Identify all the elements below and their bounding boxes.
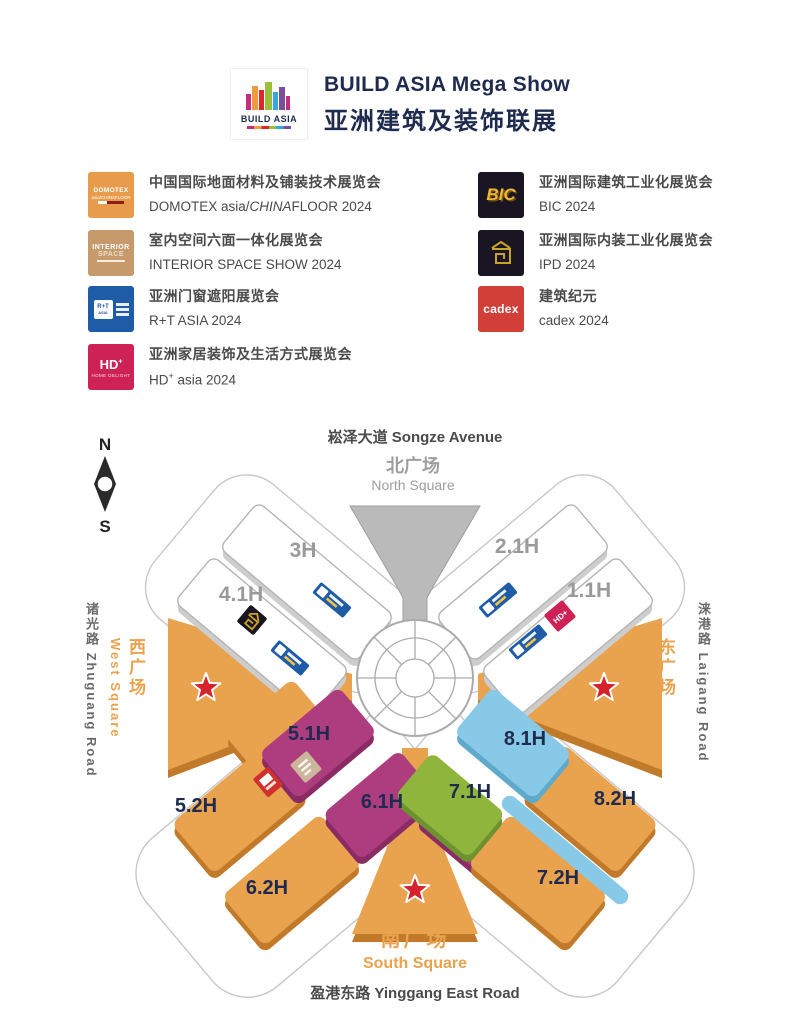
legend-item-ipd: 亚洲国际内装工业化展览会 IPD 2024 [478, 230, 713, 276]
legend-en: R+T ASIA 2024 [149, 313, 280, 328]
south-square-en: South Square [363, 955, 467, 972]
legend-cn: 亚洲国际建筑工业化展览会 [539, 172, 713, 192]
road-east-label: 涞港路 Laigang Road [694, 602, 713, 763]
legend-en: IPD 2024 [539, 257, 713, 272]
road-west-label: 诸光路 Zhuguang Road [82, 602, 101, 778]
west-square-label: 西广场 West Square [108, 638, 148, 739]
cadex-logo: cadex [478, 286, 524, 332]
page-title: BUILD ASIA Mega Show [324, 73, 570, 97]
legend-cn: 亚洲国际内装工业化展览会 [539, 230, 713, 250]
interior-logo-rule [97, 260, 125, 262]
compass-s: S [99, 517, 110, 536]
domotex-logo-bar [98, 201, 124, 204]
legend-en: cadex 2024 [539, 313, 609, 328]
poster-page: BUILD ASIA BUILD ASIA Mega Show 亚洲建筑及装饰联… [0, 0, 800, 1011]
legend-item-rt-asia: R+T ASIA 亚洲门窗遮阳展览会 R+T ASIA 2024 [88, 286, 280, 332]
north-square-en: North Square [371, 477, 454, 493]
title-block: BUILD ASIA Mega Show 亚洲建筑及装饰联展 [324, 73, 570, 136]
hall-label-5.1H: 5.1H [288, 723, 330, 745]
legend-item-bic: BIC 亚洲国际建筑工业化展览会 BIC 2024 [478, 172, 713, 218]
north-square-cn: 北广场 [386, 455, 440, 476]
compass-n: N [99, 435, 111, 454]
legend-item-hd-asia: HD+ HOME DELIGHT 亚洲家居装饰及生活方式展览会 HD+ asia… [88, 344, 352, 390]
hall-label-6.1H: 6.1H [361, 791, 403, 813]
ipd-spiral-icon [487, 239, 515, 267]
hall-label-8.1H: 8.1H [504, 728, 546, 750]
legend-cn: 亚洲家居装饰及生活方式展览会 [149, 344, 352, 364]
rt-logo-lines [116, 303, 129, 316]
ipd-logo [478, 230, 524, 276]
legend-cn: 亚洲门窗遮阳展览会 [149, 286, 280, 306]
east-square-label: 东广场 East Square [638, 638, 678, 735]
page-subtitle: 亚洲建筑及装饰联展 [324, 101, 570, 136]
road-south-label: 盈港东路 Yinggang East Road [309, 984, 519, 1002]
hall-label-5.2H: 5.2H [175, 795, 217, 817]
legend-en: HD+ asia 2024 [149, 371, 352, 388]
legend-cn: 中国国际地面材料及铺装技术展览会 [149, 172, 381, 192]
legend-en: INTERIOR SPACE SHOW 2024 [149, 257, 342, 272]
hall-label-7.1H: 7.1H [449, 781, 491, 803]
legend-cn: 室内空间六面一体化展览会 [149, 230, 342, 250]
build-asia-logo: BUILD ASIA [230, 68, 308, 140]
hall-label-3H: 3H [290, 539, 317, 562]
central-ring [357, 620, 473, 736]
domotex-logo: DOMOTEX asia/CHINAFLOOR [88, 172, 134, 218]
legend-item-domotex: DOMOTEX asia/CHINAFLOOR 中国国际地面材料及铺装技术展览会… [88, 172, 381, 218]
legend-en: BIC 2024 [539, 199, 713, 214]
legend-item-interior-space: INTERIOR SPACE 室内空间六面一体化展览会 INTERIOR SPA… [88, 230, 342, 276]
legend-cn: 建筑纪元 [539, 286, 609, 306]
venue-map: HD+ 3H4.1H2.1H1.1H5.2H5.1H6.2H6.1H7.2H7.… [0, 420, 800, 1011]
rt-logo-chip: R+T ASIA [94, 300, 113, 319]
hd-asia-logo: HD+ HOME DELIGHT [88, 344, 134, 390]
logo-wordmark: BUILD ASIA [241, 114, 297, 124]
hall-label-7.2H: 7.2H [537, 867, 579, 889]
compass: N S [94, 435, 116, 536]
bic-logo: BIC [478, 172, 524, 218]
interior-space-logo: INTERIOR SPACE [88, 230, 134, 276]
south-square-cn: 南广场 [381, 927, 450, 951]
hall-label-1.1H: 1.1H [567, 579, 611, 602]
logo-color-strip [247, 126, 291, 129]
road-north-label: 崧泽大道 Songze Avenue [328, 428, 503, 446]
build-asia-skyline-icon [244, 80, 294, 112]
hall-label-2.1H: 2.1H [495, 535, 539, 558]
hall-label-6.2H: 6.2H [246, 877, 288, 899]
legend-item-cadex: cadex 建筑纪元 cadex 2024 [478, 286, 609, 332]
header: BUILD ASIA BUILD ASIA Mega Show 亚洲建筑及装饰联… [0, 68, 800, 140]
legend-en: DOMOTEX asia/CHINAFLOOR 2024 [149, 199, 381, 214]
rt-asia-logo: R+T ASIA [88, 286, 134, 332]
hall-label-4.1H: 4.1H [219, 583, 263, 606]
hall-label-8.2H: 8.2H [594, 788, 636, 810]
